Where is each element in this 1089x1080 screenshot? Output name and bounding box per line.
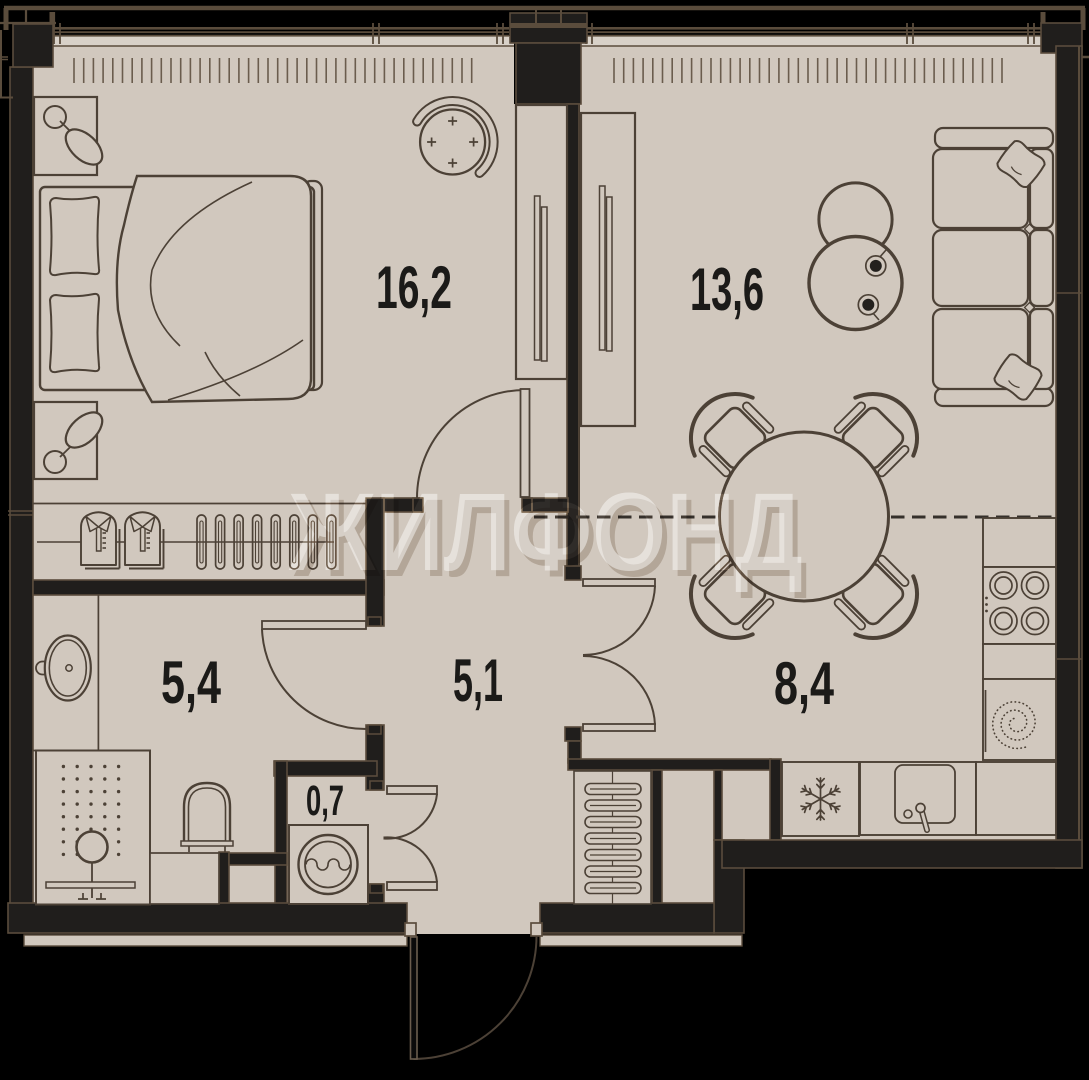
svg-text:5,1: 5,1 xyxy=(453,647,503,714)
svg-text:16,2: 16,2 xyxy=(376,254,452,321)
svg-text:5,4: 5,4 xyxy=(161,649,221,716)
svg-text:8,4: 8,4 xyxy=(774,650,834,717)
svg-text:0,7: 0,7 xyxy=(306,777,344,825)
svg-text:ЖИЛФОНД: ЖИЛФОНД xyxy=(288,471,803,594)
svg-text:13,6: 13,6 xyxy=(690,256,764,323)
